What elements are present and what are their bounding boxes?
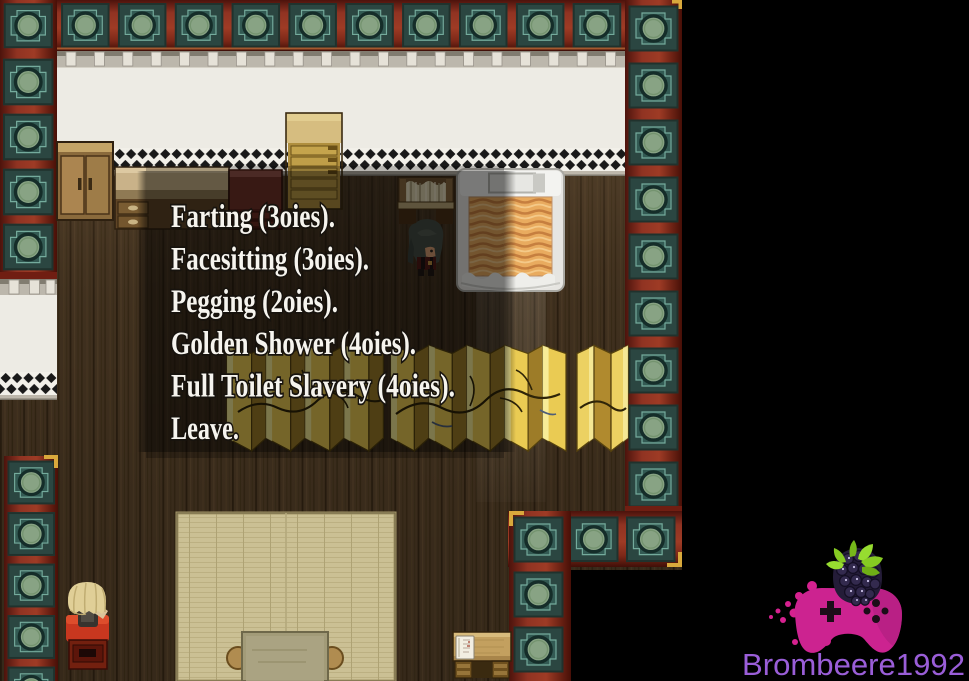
svg-text:Full Toilet Slavery (4oies).: Full Toilet Slavery (4oies). — [171, 369, 455, 405]
svg-text:Golden Shower (4oies).: Golden Shower (4oies). — [171, 326, 416, 362]
svg-text:Pegging (2oies).: Pegging (2oies). — [171, 284, 338, 320]
svg-text:Brombeere1992: Brombeere1992 — [742, 647, 965, 681]
svg-text:Farting (3oies).: Farting (3oies). — [171, 199, 335, 235]
svg-text:Leave.: Leave. — [171, 411, 239, 447]
svg-text:Facesitting (3oies).: Facesitting (3oies). — [171, 241, 369, 277]
